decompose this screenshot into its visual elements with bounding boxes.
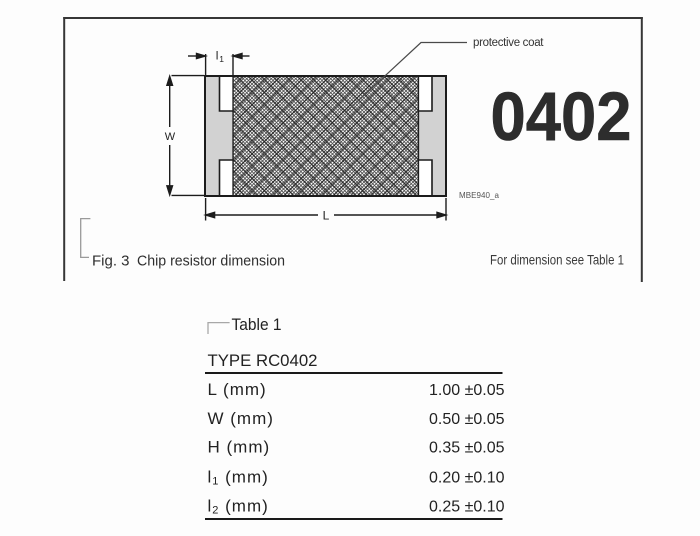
svg-text:L: L xyxy=(323,209,330,223)
svg-text:For dimension see Table 1: For dimension see Table 1 xyxy=(490,252,624,267)
svg-text:Chip resistor dimension: Chip resistor dimension xyxy=(137,253,285,270)
svg-text:l2 (mm): l2 (mm) xyxy=(208,497,269,517)
svg-text:TYPE RC0402: TYPE RC0402 xyxy=(208,351,318,370)
svg-text:L (mm): L (mm) xyxy=(208,380,267,399)
svg-text:0402: 0402 xyxy=(491,78,632,155)
svg-text:0.25 ±0.10: 0.25 ±0.10 xyxy=(429,499,505,516)
svg-text:0.35 ±0.05: 0.35 ±0.05 xyxy=(429,440,505,457)
svg-text:0.50 ±0.05: 0.50 ±0.05 xyxy=(429,411,505,428)
svg-text:W: W xyxy=(165,131,176,143)
svg-text:MBE940_a: MBE940_a xyxy=(459,191,500,200)
svg-text:Fig. 3: Fig. 3 xyxy=(92,253,130,270)
svg-text:1: 1 xyxy=(219,54,224,64)
svg-text:W (mm): W (mm) xyxy=(208,409,274,428)
svg-text:protective coat: protective coat xyxy=(473,37,544,49)
svg-text:0.20 ±0.10: 0.20 ±0.10 xyxy=(429,470,505,487)
svg-text:l: l xyxy=(216,49,219,63)
svg-text:H (mm): H (mm) xyxy=(208,438,271,457)
svg-text:1.00 ±0.05: 1.00 ±0.05 xyxy=(429,382,505,399)
svg-text:Table 1: Table 1 xyxy=(232,315,282,334)
svg-text:l1 (mm): l1 (mm) xyxy=(208,468,269,488)
